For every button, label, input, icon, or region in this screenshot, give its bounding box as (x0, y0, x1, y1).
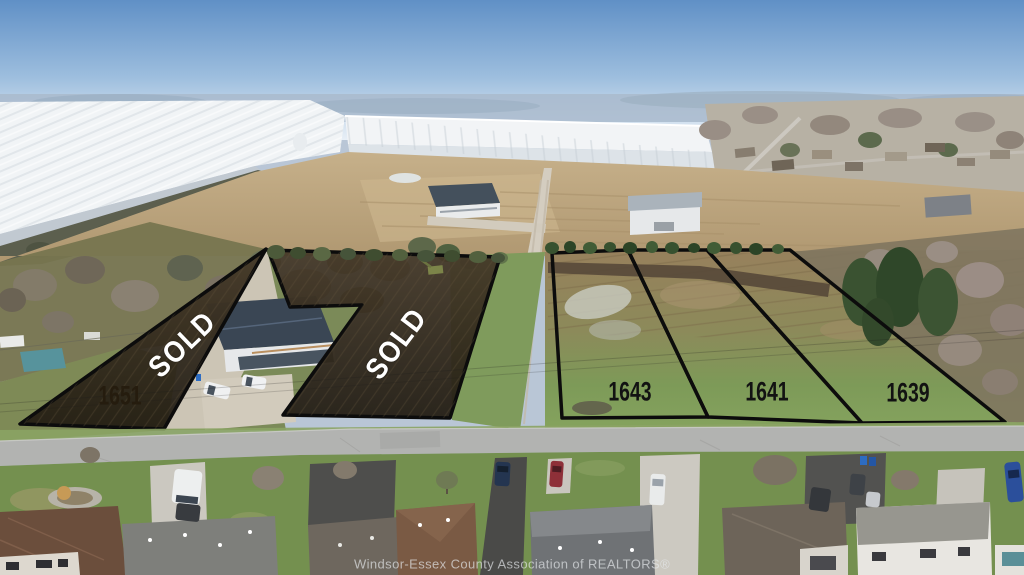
gray-roof-house (924, 194, 971, 217)
aerial-photo: SOLD SOLD 1651 1643 1641 1639 Windsor-Es… (0, 0, 1024, 575)
dark-car (849, 473, 866, 495)
dark-car (808, 487, 831, 513)
aerial-photo-canvas (0, 0, 1024, 575)
blue-bin (869, 457, 876, 466)
white-car (649, 474, 666, 506)
pole-barn (628, 192, 702, 235)
white-trailer (0, 335, 24, 348)
teal-structure (1002, 552, 1024, 566)
blue-bin (196, 374, 201, 381)
ornamental-grass (57, 486, 71, 500)
blue-car (494, 462, 510, 487)
dark-car (175, 503, 201, 522)
red-car (549, 461, 564, 488)
conifer-tree (918, 268, 958, 336)
teal-roof-house (20, 348, 66, 372)
house-roof (308, 517, 400, 575)
pond (389, 173, 421, 183)
silver-car (865, 491, 880, 507)
house-roof-gray (122, 516, 278, 575)
blue-bin (860, 456, 867, 465)
